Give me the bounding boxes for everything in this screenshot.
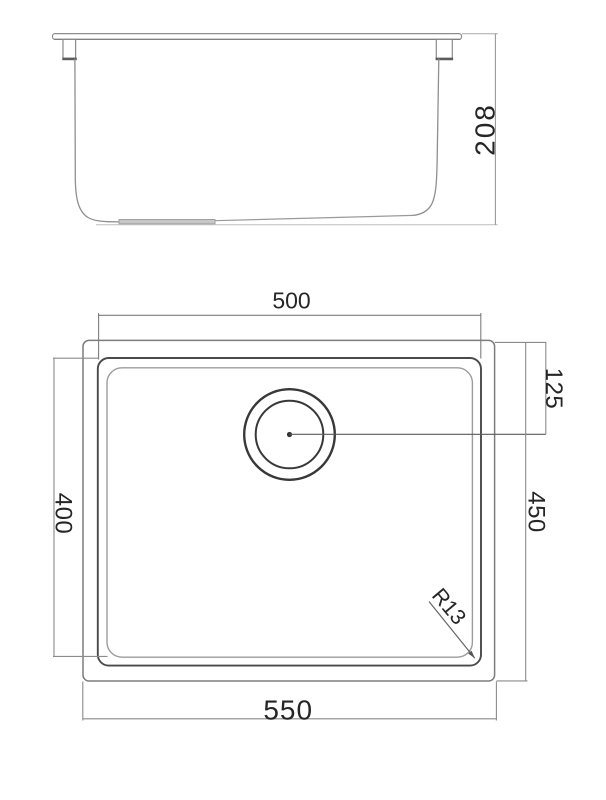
svg-text:208: 208: [470, 103, 501, 156]
svg-text:450: 450: [523, 491, 550, 533]
svg-text:400: 400: [50, 493, 77, 535]
svg-text:125: 125: [540, 368, 567, 410]
svg-text:550: 550: [263, 695, 313, 726]
svg-text:500: 500: [272, 288, 310, 314]
